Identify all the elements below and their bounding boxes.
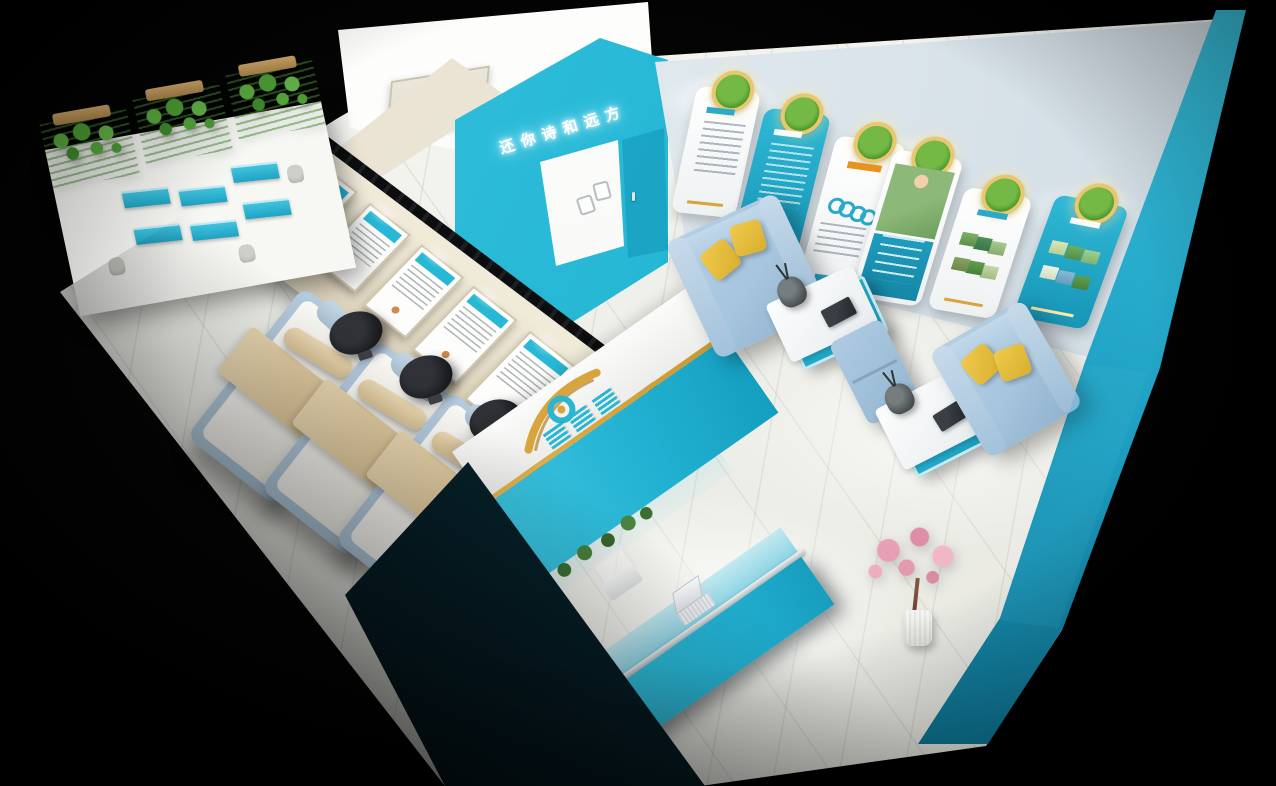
teal-product-box [242,198,292,219]
potted-plant [237,243,257,263]
clinic-showroom-render: 还你诗和远方 [0,0,1276,786]
blossom-tree [852,512,992,662]
teal-product-box [230,162,280,183]
hanging-ivy-plant [225,60,325,140]
teal-product-box [121,187,171,208]
teal-product-box [133,223,183,244]
door-handle [632,192,635,201]
teal-product-box [190,220,240,241]
pink-blossom-canopy [852,512,982,608]
potted-plant [286,164,306,184]
white-planter-pot [904,610,932,646]
potted-plant [107,256,127,276]
hanging-ivy-plant [40,109,140,189]
hanging-ivy-plant [133,85,233,165]
teal-product-box [178,185,228,206]
